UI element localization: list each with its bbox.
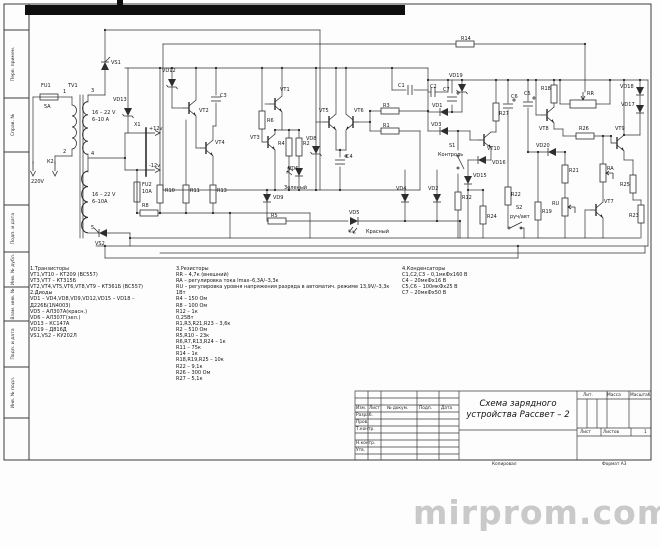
junction-dot [315,189,317,191]
junction-dot [298,129,300,131]
component-label: FU2 [142,182,152,188]
junction-dot [535,79,537,81]
component-label: 10А [142,189,152,195]
c1-capacitor [408,85,412,95]
component-label: C7 [443,87,450,93]
parts-line: VS1,VS2 – КУ202Л [30,333,175,339]
component-label: VT5 [319,108,329,114]
component-label: Красный [366,228,389,235]
scan-artifact-bar [25,5,405,15]
junction-dot [457,130,459,132]
component-label: RU [552,201,559,207]
component-label: К2 [47,159,54,165]
r8-resistor [140,210,158,216]
component-label: R8 [142,203,149,209]
junction-dot [266,189,268,191]
tb-row-prov: Пров. [356,420,369,426]
r6-resistor [259,111,265,129]
vt1-transistor [269,96,282,112]
component-label: RR [587,91,594,97]
parts-line: VD1 – VD4,VD8,VD9,VD12,VD15 – VD18 – Д22… [30,296,175,308]
vd16-diode [478,156,486,164]
component-label: C1 [398,83,405,89]
component-label: VT10 [487,146,500,152]
junction-dot [427,79,429,81]
component-label: C4 [346,154,353,160]
parts-line: RU – регулировка уровня напряжения разря… [176,284,401,290]
component-label: R14 [461,36,471,42]
vs2-thyristor [94,228,107,237]
junction-dot [288,129,290,131]
junction-dot [335,67,337,69]
tb-col-izm: Изм. [356,406,366,412]
component-label: -12v [149,163,160,169]
component-label: S1 [449,143,455,149]
component-label: VT7 [604,199,614,205]
junction-dot [124,157,126,159]
component-label: C5 [524,91,531,97]
parts-line: R27 – 5,1к [176,376,401,382]
junction-dot [229,212,231,214]
component-label: C3 [220,93,227,99]
junction-dot [447,79,449,81]
junction-dot [451,111,453,113]
component-label: R26 [579,126,589,132]
vt9-transistor [611,135,624,151]
r11-resistor [183,185,189,203]
tb-kopiroval: Копировал [492,462,517,468]
vt7-transistor [590,202,603,218]
junction-dot [159,212,161,214]
junction-dot [559,79,561,81]
component-label: +12v [149,126,163,132]
vt8-transistor [541,107,554,123]
component-label: VT4 [215,140,225,146]
component-label: 6–10 А [92,117,110,123]
tb-col-ndok: № докум. [387,406,408,412]
vt5-transistor [323,114,336,130]
tb-list: Лист [580,430,591,436]
junction-dot [427,110,429,112]
vs1-thyristor [101,57,110,70]
x2-arrow-1 [31,161,36,176]
frame-label-vzam-inv: Взам. инв. № [8,287,20,321]
junction-dot [391,67,393,69]
r21-resistor [562,165,568,183]
r18-resistor [551,85,557,103]
vd9-diode [263,194,271,202]
junction-dot [461,79,463,81]
junction-dot [339,189,341,191]
component-label: VT6 [354,108,364,114]
component-label: VD3 [431,122,441,128]
component-label: 16 – 22 V [92,192,116,198]
tb-row-tkontr: Т.контр. [356,427,375,433]
vd4-diode [401,194,409,202]
fu1-fuse [40,94,58,100]
frame-label-perv-primen: Перв. примен. [8,30,20,98]
tb-col-data: Дата [441,406,452,412]
component-label: RA [607,166,614,172]
component-label: R10 [165,188,175,194]
vd18-diode [636,87,644,95]
component-label: R12 [462,195,472,201]
r2-resistor [296,138,302,156]
component-label: VS2 [95,241,105,247]
junction-dot [345,67,347,69]
component-label: VD13 [113,97,127,103]
component-label: VD16 [492,160,506,166]
component-label: C2 [430,84,437,90]
component-label: руч/авт [510,214,530,220]
component-label: S2 [516,205,522,211]
frame-label-podp-data-1: Подп. и дата [8,205,20,252]
drawing-title: Схема зарядного устройства Рассвет – 2 [459,399,577,420]
tb-row-utv: Утв. [356,448,365,454]
component-label: 2 [63,149,66,155]
component-label: VD15 [473,173,487,179]
junction-dot [459,220,461,222]
junction-dot [527,151,529,153]
component-label: 6–10А [92,199,108,205]
junction-dot [404,220,406,222]
frame-label-inv-podl: Инв. № подл. [8,367,20,418]
r23-resistor [638,205,644,223]
component-label: VT8 [539,126,549,132]
component-label: R23 [629,213,639,219]
junction-dot [564,151,566,153]
component-label: R3 [383,103,390,109]
junction-dot [195,67,197,69]
tb-lit: Лит. [583,393,593,399]
component-label: 5 [91,225,94,231]
frame-label-sprav-n: Справ. № [8,98,20,152]
vd3-diode [440,127,448,135]
component-label: 220V [31,179,45,185]
parts-line: C7 – 20мкФх50 В [402,290,532,296]
vt6-transistor [346,114,359,130]
junction-dot [517,245,519,247]
junction-dot [495,79,497,81]
parts-list-resistors: 3.РезисторыRR – 4,7к (внешний)RA – регул… [176,266,401,382]
component-label: R11 [190,188,200,194]
frame-label-inv-dubl: Инв. № дубл. [8,252,20,287]
junction-dot [339,149,341,151]
tb-row-nkontr: Н.контр. [356,441,375,447]
component-label: 16 – 22 V [92,110,116,116]
junction-dot [129,237,131,239]
component-label: X1 [134,122,141,128]
junction-dot [212,212,214,214]
vd1-diode [440,108,448,116]
c5-capacitor [523,96,536,106]
r26-resistor [576,133,594,139]
r10-resistor [157,185,163,203]
junction-dot [436,220,438,222]
drawing-title-line2: устройства Рассвет – 2 [459,410,577,421]
parts-list-capacitors: 4.КонденсаторыC1,C2,C3 – 0,1мкФх160 ВC4 … [402,266,532,296]
drawing-title-line1: Схема зарядного [459,399,577,410]
component-label: 4 [91,151,94,157]
junction-dot [537,151,539,153]
scan-artifact-tick [117,0,123,6]
junction-dot [369,121,371,123]
component-label: VD17 [621,102,635,108]
component-label: VD9 [273,195,283,201]
component-label: VD2 [428,186,438,192]
component-label: VD12 [162,68,176,74]
junction-dot [274,189,276,191]
component-label: VD4 [396,186,406,192]
junction-dot [281,67,283,69]
r24-resistor [480,206,486,224]
junction-dot [584,43,586,45]
component-label: R27 [499,111,509,117]
vt3-transistor [262,134,275,150]
r13-resistor [210,185,216,203]
junction-dot [369,110,371,112]
component-label: C6 [511,94,518,100]
tb-col-podp: Подп. [419,406,432,412]
s2-switch [508,222,522,229]
junction-dot [136,212,138,214]
junction-dot [185,212,187,214]
vd5-led [349,217,358,233]
tb-listov: Листов [603,430,619,436]
tb-format: Формат А3 [602,462,626,468]
component-label: R1 [383,123,390,129]
r12-resistor [455,192,461,210]
junction-dot [639,79,641,81]
component-label: R25 [620,182,630,188]
component-label: TV1 [67,83,78,89]
component-label: VS1 [111,60,121,66]
component-label: R13 [217,188,227,194]
component-label: VD6 [288,166,298,172]
r19-resistor [535,202,541,220]
component-label: VD8 [306,136,316,142]
component-label: Зеленый [284,184,307,191]
vt2-transistor [183,100,196,116]
vd17-diode [636,105,644,113]
junction-dot [553,79,555,81]
vd15-diode [464,176,472,184]
junction-dot [602,135,604,137]
component-label: 1 [63,89,66,95]
component-label: 5А [44,104,51,110]
junction-dot [507,79,509,81]
ru-potentiometer [562,198,575,216]
junction-dot [467,189,469,191]
vd2-diode [433,194,441,202]
component-label: R21 [569,168,579,174]
schematic-generated-layer: FU15АTV112345К2220V16 – 22 V6–10 А16 – 2… [31,29,649,258]
component-label: Контроль [438,152,463,158]
fu2-fuse [134,182,140,202]
component-label: R18 [541,86,551,92]
vt4-transistor [200,140,213,156]
component-label: VT2 [199,108,209,114]
component-label: R19 [542,209,552,215]
tb-col-list: Лист [369,406,380,412]
component-label: VT9 [615,126,625,132]
component-label: 3 [91,88,94,94]
component-label: R22 [511,192,521,198]
component-label: R24 [487,214,497,220]
junction-dot [482,189,484,191]
frame-label-podp-data-2: Подп. и дата [8,321,20,367]
junction-dot [274,129,276,131]
component-label: R4 [278,141,285,147]
r25-resistor [630,175,636,193]
tb-massa: Масса [607,393,621,399]
junction-dot [261,67,263,69]
tb-listov-num: 1 [644,430,647,436]
component-label: VD20 [536,143,550,149]
component-label: VD18 [620,84,634,90]
component-label: VD5 [349,210,359,216]
junction-dot [527,79,529,81]
component-label: R5 [271,213,278,219]
junction-dot [136,169,138,171]
junction-dot [104,29,106,31]
junction-dot [315,67,317,69]
vd20-diode [548,148,556,156]
component-label: VT3 [250,135,260,141]
tv1-secondary-coil-2 [82,171,88,233]
watermark: mirprom.com [413,493,660,532]
tv1-secondary-coil-1 [83,102,88,155]
junction-dot [215,67,217,69]
component-label: VD1 [432,103,442,109]
tv1-primary-coil [72,105,77,149]
tb-masshtab: Масштаб [630,393,650,399]
component-label: VT1 [280,87,290,93]
tb-row-razrab: Разраб. [356,413,373,419]
junction-dot [623,79,625,81]
r4-resistor [286,138,292,156]
parts-list-transistors-diodes: 1.ТранзисторыVT1,VT10 – КТ209 (BC557)VT3… [30,266,175,339]
drawing-sheet: FU15АTV112345К2220V16 – 22 V6–10 А16 – 2… [0,0,660,547]
component-label: VD19 [449,73,463,79]
component-label: R6 [267,118,274,124]
component-label: FU1 [41,83,51,89]
junction-dot [609,79,611,81]
junction-dot [610,135,612,137]
junction-dot [159,67,161,69]
